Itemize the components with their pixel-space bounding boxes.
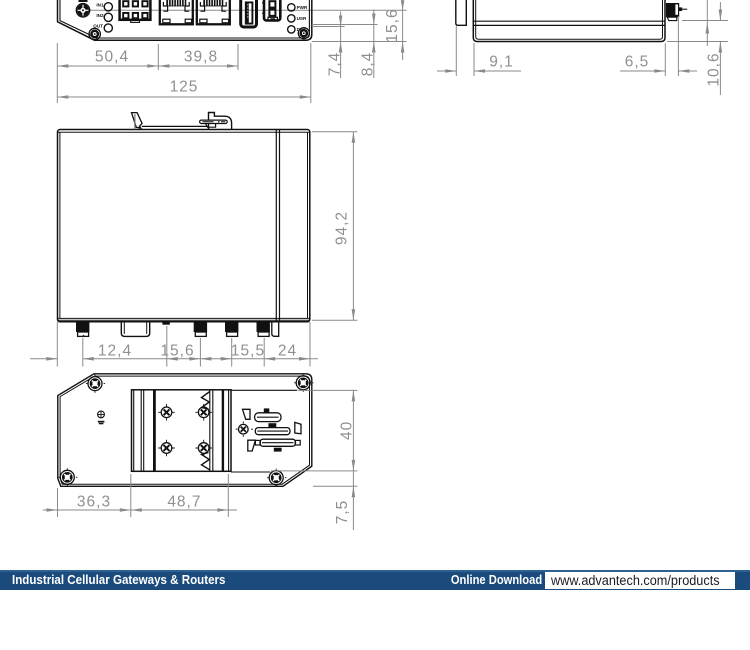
- svg-text:8,4: 8,4: [360, 52, 377, 77]
- svg-text:15,6: 15,6: [384, 8, 401, 42]
- svg-text:15,6: 15,6: [160, 343, 194, 360]
- svg-text:9,1: 9,1: [489, 54, 514, 71]
- svg-text:7,4: 7,4: [327, 52, 344, 77]
- svg-text:40: 40: [338, 421, 355, 440]
- svg-text:10,6: 10,6: [705, 52, 722, 86]
- svg-text:7,5: 7,5: [334, 500, 351, 525]
- svg-text:125: 125: [170, 79, 199, 96]
- svg-text:USR: USR: [297, 16, 307, 21]
- svg-text:36,3: 36,3: [77, 494, 111, 511]
- svg-text:24: 24: [278, 343, 297, 360]
- svg-text:IN1: IN1: [96, 2, 104, 7]
- svg-text:15,5: 15,5: [231, 343, 265, 360]
- svg-text:IN2: IN2: [96, 13, 104, 18]
- svg-text:12,4: 12,4: [98, 343, 132, 360]
- svg-text:94,2: 94,2: [334, 211, 351, 245]
- svg-text:48,7: 48,7: [167, 494, 201, 511]
- svg-text:PWR: PWR: [297, 5, 308, 10]
- svg-text:6,5: 6,5: [625, 54, 650, 71]
- svg-text:39,8: 39,8: [184, 49, 218, 66]
- svg-text:50,4: 50,4: [95, 49, 129, 66]
